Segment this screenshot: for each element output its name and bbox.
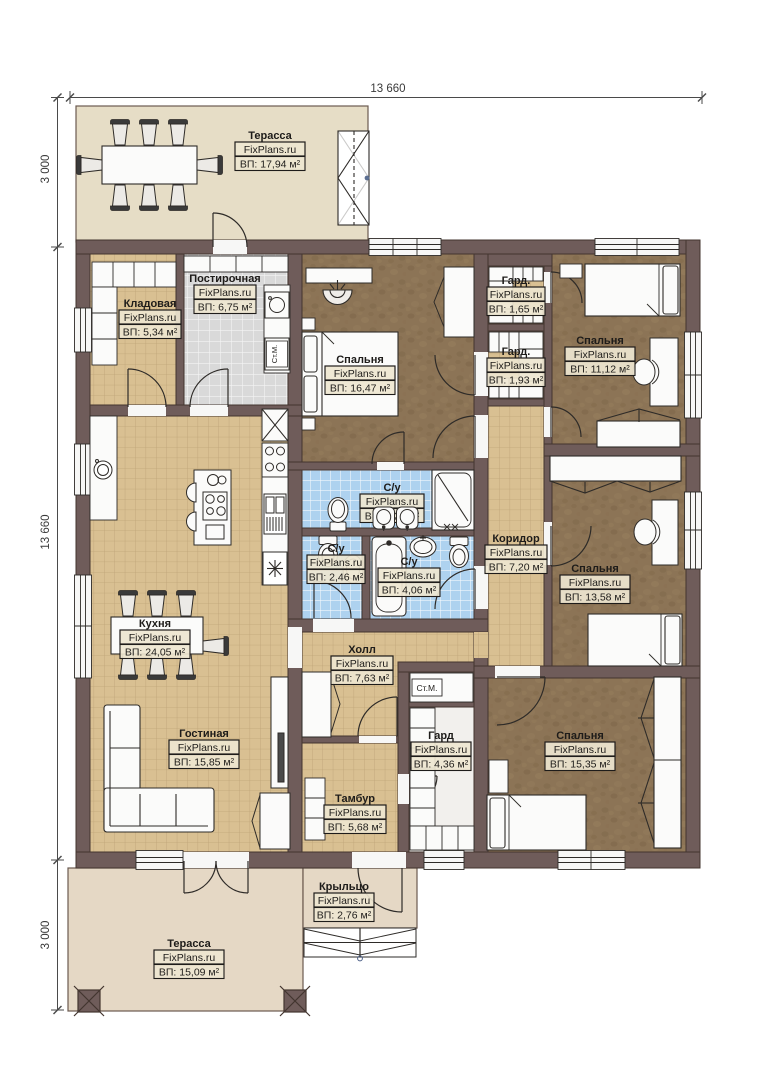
svg-text:ВП: 5,34 м²: ВП: 5,34 м² — [123, 327, 178, 339]
svg-text:ВП: 7,63 м²: ВП: 7,63 м² — [335, 673, 390, 685]
svg-text:FixPlans.ru: FixPlans.ru — [129, 632, 182, 644]
svg-text:Кухня: Кухня — [139, 618, 171, 630]
svg-text:FixPlans.ru: FixPlans.ru — [163, 952, 216, 964]
svg-text:FixPlans.ru: FixPlans.ru — [336, 658, 389, 670]
svg-text:Гард: Гард — [428, 730, 454, 742]
svg-text:ВП: 24,05 м²: ВП: 24,05 м² — [125, 647, 186, 659]
svg-text:FixPlans.ru: FixPlans.ru — [490, 547, 543, 559]
svg-text:ВП: 1,65 м²: ВП: 1,65 м² — [489, 304, 544, 316]
svg-text:FixPlans.ru: FixPlans.ru — [199, 287, 252, 299]
svg-text:Спальня: Спальня — [556, 730, 604, 742]
svg-text:Тамбур: Тамбур — [335, 793, 375, 805]
svg-text:FixPlans.ru: FixPlans.ru — [574, 349, 627, 361]
svg-text:FixPlans.ru: FixPlans.ru — [383, 570, 436, 582]
svg-text:ВП: 4,06 м²: ВП: 4,06 м² — [382, 585, 437, 597]
svg-text:FixPlans.ru: FixPlans.ru — [490, 289, 543, 301]
svg-text:Ст.М.: Ст.М. — [270, 345, 279, 363]
svg-text:Спальня: Спальня — [571, 563, 619, 575]
svg-text:13 660: 13 660 — [40, 514, 52, 549]
svg-text:FixPlans.ru: FixPlans.ru — [334, 368, 387, 380]
svg-text:ВП: 6,75 м²: ВП: 6,75 м² — [198, 302, 253, 314]
svg-text:FixPlans.ru: FixPlans.ru — [569, 577, 622, 589]
svg-text:FixPlans.ru: FixPlans.ru — [318, 895, 371, 907]
svg-text:13 660: 13 660 — [370, 83, 405, 95]
svg-text:Постирочная: Постирочная — [189, 273, 260, 285]
svg-text:Терасса: Терасса — [248, 130, 292, 142]
svg-text:ВП: 4,36 м²: ВП: 4,36 м² — [414, 759, 469, 771]
svg-text:ВП: 13,58 м²: ВП: 13,58 м² — [565, 592, 626, 604]
svg-text:ВП: 17,94 м²: ВП: 17,94 м² — [240, 159, 301, 171]
svg-text:3 000: 3 000 — [40, 155, 52, 184]
svg-text:ВП: 5,68 м²: ВП: 5,68 м² — [328, 822, 383, 834]
svg-text:Холл: Холл — [348, 644, 376, 656]
svg-text:FixPlans.ru: FixPlans.ru — [178, 742, 231, 754]
svg-text:ВП: 1,93 м²: ВП: 1,93 м² — [489, 375, 544, 387]
svg-text:Спальня: Спальня — [336, 354, 384, 366]
svg-text:Спальня: Спальня — [576, 335, 624, 347]
svg-text:ВП: 16,47 м²: ВП: 16,47 м² — [330, 383, 391, 395]
svg-text:Гард.: Гард. — [502, 346, 531, 358]
svg-text:FixPlans.ru: FixPlans.ru — [490, 360, 543, 372]
svg-text:Кладовая: Кладовая — [124, 298, 177, 310]
svg-text:Гостиная: Гостиная — [179, 728, 229, 740]
svg-text:ВП: 2,76 м²: ВП: 2,76 м² — [317, 910, 372, 922]
svg-text:ВП: 15,35 м²: ВП: 15,35 м² — [550, 759, 611, 771]
svg-text:С/у: С/у — [400, 556, 418, 568]
svg-text:С/у: С/у — [327, 543, 345, 555]
svg-text:С/у: С/у — [383, 482, 401, 494]
svg-text:ВП: 7,20 м²: ВП: 7,20 м² — [489, 562, 544, 574]
svg-text:FixPlans.ru: FixPlans.ru — [244, 144, 297, 156]
svg-text:Терасса: Терасса — [167, 938, 211, 950]
svg-text:Коридор: Коридор — [492, 533, 540, 545]
svg-text:ВП: 15,09 м²: ВП: 15,09 м² — [159, 967, 220, 979]
svg-text:ВП: 2,46 м²: ВП: 2,46 м² — [309, 572, 364, 584]
svg-text:FixPlans.ru: FixPlans.ru — [310, 557, 363, 569]
svg-text:Ст.М.: Ст.М. — [417, 683, 438, 693]
svg-text:Гард.: Гард. — [502, 275, 531, 287]
svg-text:FixPlans.ru: FixPlans.ru — [124, 312, 177, 324]
svg-text:ВП: 15,85 м²: ВП: 15,85 м² — [174, 757, 235, 769]
svg-text:FixPlans.ru: FixPlans.ru — [329, 807, 382, 819]
svg-text:Крыльцо: Крыльцо — [319, 881, 369, 893]
svg-text:FixPlans.ru: FixPlans.ru — [554, 744, 607, 756]
svg-text:FixPlans.ru: FixPlans.ru — [366, 496, 419, 508]
svg-text:3 000: 3 000 — [40, 921, 52, 950]
svg-text:FixPlans.ru: FixPlans.ru — [415, 744, 468, 756]
svg-text:ВП: 11,12 м²: ВП: 11,12 м² — [570, 364, 630, 376]
